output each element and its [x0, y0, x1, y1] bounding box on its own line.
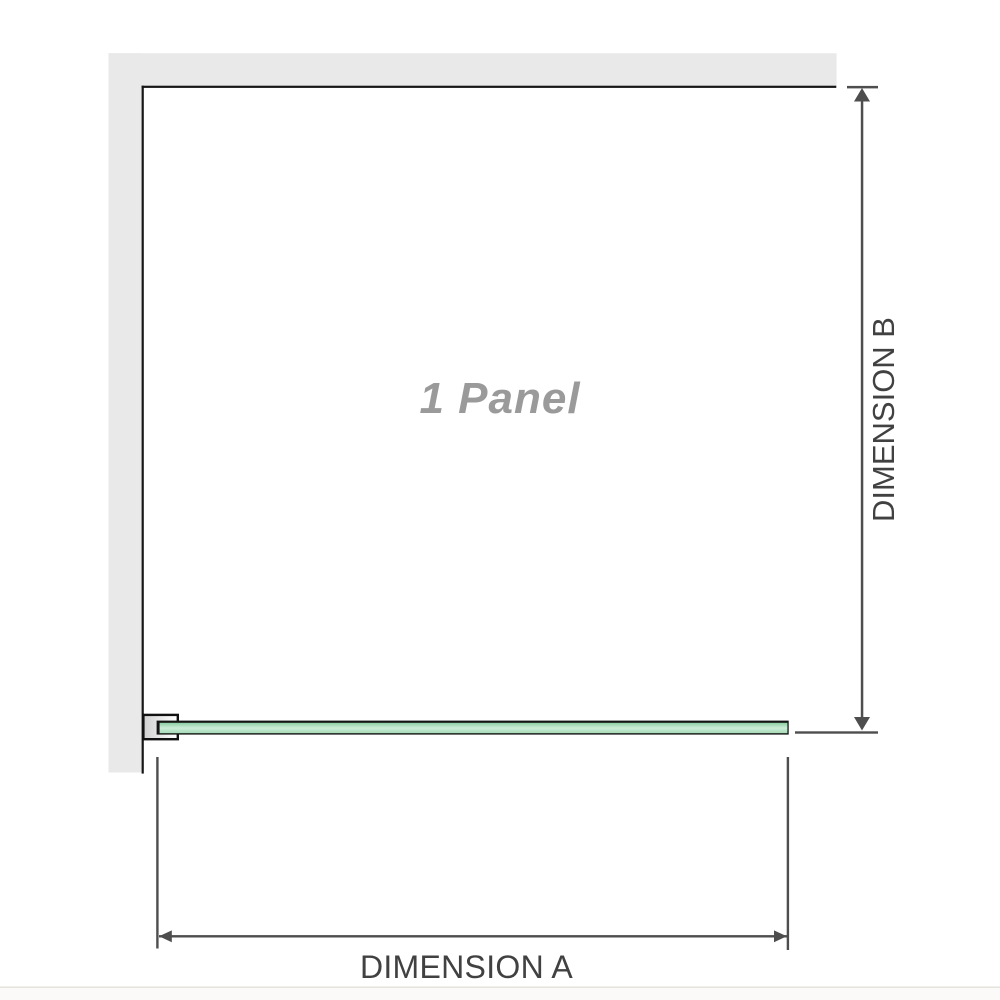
svg-text:DIMENSION B: DIMENSION B: [866, 317, 901, 522]
svg-text:1 Panel: 1 Panel: [419, 374, 580, 423]
svg-text:DIMENSION A: DIMENSION A: [360, 949, 573, 985]
